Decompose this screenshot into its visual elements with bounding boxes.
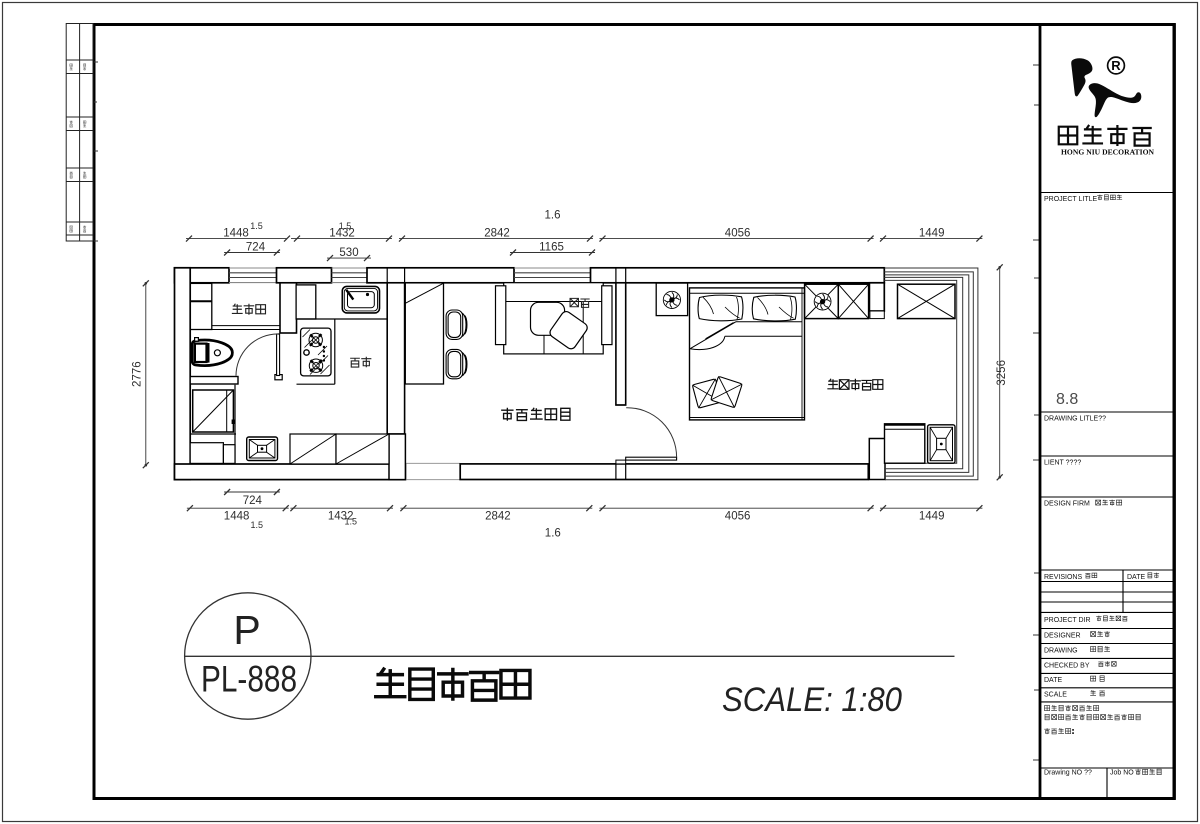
svg-text:P: P	[233, 607, 260, 653]
svg-text:DATE: DATE	[1127, 574, 1145, 581]
svg-text:Drawing NO ??: Drawing NO ??	[1044, 770, 1092, 777]
svg-text:1.5: 1.5	[339, 221, 352, 231]
svg-text:1448: 1448	[224, 511, 250, 523]
svg-text:DESIGNER: DESIGNER	[1044, 633, 1081, 640]
svg-text:R: R	[1111, 58, 1121, 73]
svg-text:1165: 1165	[539, 242, 564, 254]
svg-text:2842: 2842	[485, 511, 511, 523]
svg-text:530: 530	[339, 247, 358, 259]
svg-text:1448: 1448	[223, 228, 249, 240]
svg-text:HONG NIU DECORATION: HONG NIU DECORATION	[1061, 149, 1154, 157]
svg-text:1.5: 1.5	[250, 221, 263, 231]
svg-text:PL-888: PL-888	[201, 659, 297, 700]
svg-text:8.8: 8.8	[1056, 391, 1078, 408]
svg-text:1.5: 1.5	[251, 520, 264, 530]
svg-text:1449: 1449	[919, 511, 945, 523]
svg-text:Job NO: Job NO	[1110, 770, 1134, 777]
svg-text:SCALE: SCALE	[1044, 692, 1067, 699]
svg-text::: :	[1072, 727, 1074, 736]
svg-text:724: 724	[246, 242, 266, 254]
svg-text:DATE: DATE	[1044, 677, 1062, 684]
svg-text:3256: 3256	[996, 360, 1008, 386]
svg-text:CHECKED BY: CHECKED BY	[1044, 663, 1090, 670]
svg-text:4056: 4056	[725, 228, 751, 240]
svg-text:DESIGN FIRM: DESIGN FIRM	[1044, 501, 1090, 508]
svg-text:REVISIONS: REVISIONS	[1044, 574, 1082, 581]
svg-text:1.6: 1.6	[545, 528, 561, 540]
svg-text:DRAWING: DRAWING	[1044, 648, 1078, 655]
svg-text:LIENT ????: LIENT ????	[1044, 460, 1081, 467]
svg-text:4056: 4056	[725, 511, 751, 523]
svg-text:2776: 2776	[132, 361, 144, 387]
svg-text:SCALE: 1:80: SCALE: 1:80	[722, 681, 902, 719]
svg-text:1449: 1449	[919, 228, 945, 240]
svg-text:DRAWING LITLE??: DRAWING LITLE??	[1044, 416, 1106, 423]
svg-text:PROJECT DIR: PROJECT DIR	[1044, 617, 1091, 624]
svg-text:724: 724	[243, 495, 263, 507]
svg-text:2842: 2842	[484, 228, 510, 240]
svg-text:1.5: 1.5	[344, 517, 357, 527]
svg-text:PROJECT LITLE: PROJECT LITLE	[1044, 196, 1097, 203]
svg-text:1.6: 1.6	[545, 210, 561, 222]
